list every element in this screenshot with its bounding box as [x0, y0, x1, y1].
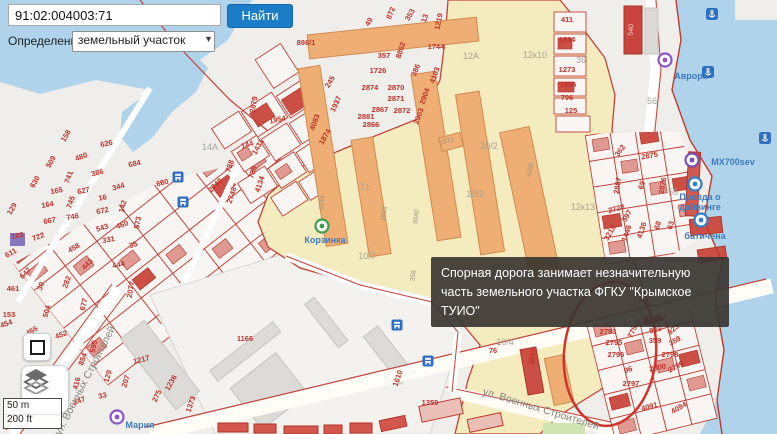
quarter-label: 10/2: [480, 141, 498, 151]
map-tooltip: Спорная дорога занимает незначительную ч…: [431, 257, 729, 327]
poi-label: Аврора: [674, 71, 709, 81]
chevron-down-icon: ▾: [206, 34, 211, 45]
poi-label: Мария: [126, 420, 155, 430]
parcel-number: 125: [565, 106, 578, 115]
cadastral-map-app: 4987235313121917448862357172638641032874…: [0, 0, 777, 434]
definition-value: земельный участок: [78, 33, 185, 47]
parcel-number: 2797: [623, 379, 640, 388]
poi-label: дайвинге: [679, 202, 721, 212]
parcel-number: 76: [489, 346, 497, 355]
parcel-number: 2793: [600, 327, 617, 336]
extent-icon: [30, 340, 45, 355]
bus-stop-icon[interactable]: [178, 197, 189, 208]
mx700sev-poi-icon[interactable]: [686, 154, 699, 167]
quarter-label: 10/2: [466, 189, 484, 199]
parcel-number: 1744: [428, 42, 446, 51]
parcel-number: 2874: [362, 83, 380, 92]
parcel-number: 1273: [559, 65, 576, 74]
parcel-number: 2872: [394, 106, 411, 115]
map-canvas[interactable]: 4987235313121917448862357172638641032874…: [0, 0, 777, 434]
scale-bar-imperial: 200 ft: [3, 413, 62, 429]
poi-label: батичена: [684, 231, 726, 241]
parcel-number: 2870: [388, 83, 405, 92]
parcel-number: 461: [7, 284, 20, 293]
quarter-label: 56: [668, 187, 678, 197]
parcel-number: 411: [561, 15, 573, 24]
search-input[interactable]: [8, 4, 221, 26]
parcel-number: 898/1: [297, 38, 316, 47]
parcel-number: 796: [561, 93, 574, 102]
poi-label: Правда о: [679, 192, 721, 202]
parcel-number: 359: [649, 336, 662, 345]
quarter-label: 56: [647, 96, 657, 106]
parcel-number: 1359: [422, 398, 439, 407]
parcel-number: 3623: [527, 348, 537, 365]
quay: [735, 0, 777, 20]
parcel-number: 1834: [559, 35, 577, 44]
quarter-label: 12А: [463, 51, 479, 61]
quarter-label: 14А: [202, 142, 218, 152]
parcel-number: 1726: [370, 66, 387, 75]
poi-label: Корзинка: [304, 235, 346, 245]
parcel-number: 357: [378, 51, 391, 60]
poi-icon[interactable]: [695, 214, 708, 227]
anchor-pier-icon[interactable]: [759, 132, 771, 144]
parcel-number: 1166: [237, 334, 253, 343]
quarter-label: 36: [576, 55, 586, 65]
bus-stop-icon[interactable]: [423, 356, 434, 367]
parcel-number: 2798: [662, 350, 679, 359]
aurora-poi-icon[interactable]: [659, 54, 672, 67]
parcel-number: 2795: [606, 338, 623, 347]
parcel-number: 16: [98, 192, 108, 202]
maria-poi-icon[interactable]: [111, 411, 124, 424]
poi-label: МХ700sev: [711, 157, 755, 167]
parcel-number: 2871: [388, 94, 405, 103]
korzinka-store-icon[interactable]: [316, 220, 329, 233]
anchor-pier-icon[interactable]: [706, 8, 718, 20]
bus-stop-icon[interactable]: [392, 320, 403, 331]
quarter-label: 12к13: [571, 202, 595, 212]
quarter-label: 10/4: [496, 337, 514, 347]
parcel-number: 2796: [608, 350, 625, 359]
quarter-label: 10/7: [358, 251, 376, 261]
diving-poi-icon[interactable]: [689, 178, 702, 191]
layers-icon: [22, 366, 50, 394]
quarter-label: 12к10: [523, 50, 547, 60]
quarter-label: 71: [360, 182, 370, 192]
find-button[interactable]: Найти: [227, 4, 293, 28]
extent-button[interactable]: [23, 333, 51, 361]
bus-stop-icon[interactable]: [173, 172, 184, 183]
building-number: 540: [628, 24, 636, 36]
definition-select[interactable]: земельный участок ▾: [72, 31, 215, 52]
parcel-number: 2866: [363, 120, 380, 129]
parcel-number: 1856: [560, 80, 577, 89]
